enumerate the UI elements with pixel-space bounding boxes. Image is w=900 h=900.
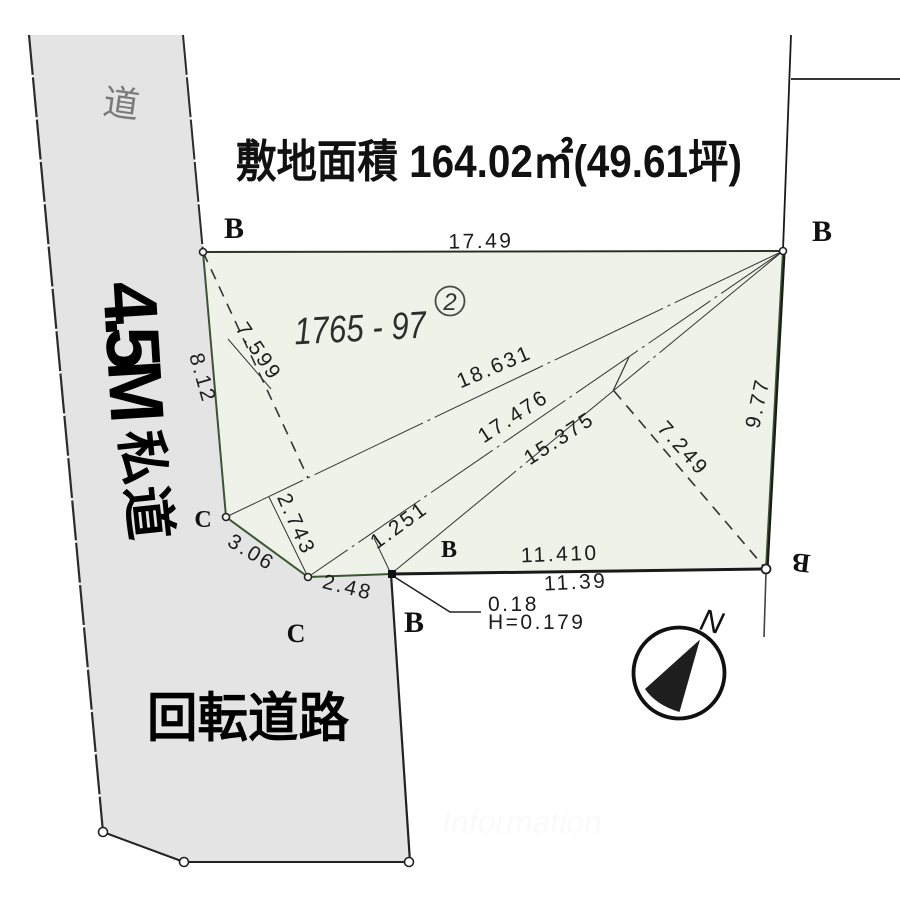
svg-text:C: C xyxy=(194,507,211,533)
svg-text:回転道路: 回転道路 xyxy=(147,689,350,748)
svg-text:17.49: 17.49 xyxy=(448,229,513,253)
svg-text:B: B xyxy=(790,547,812,579)
svg-text:N: N xyxy=(697,602,728,642)
svg-text:1765 - 97: 1765 - 97 xyxy=(293,304,429,353)
svg-text:敷地面積 164.02㎡(49.61坪): 敷地面積 164.02㎡(49.61坪) xyxy=(236,136,742,187)
svg-text:Information: Information xyxy=(442,804,602,840)
svg-text:2: 2 xyxy=(442,289,456,316)
svg-text:B: B xyxy=(224,212,244,245)
svg-text:C: C xyxy=(287,619,306,648)
svg-text:道: 道 xyxy=(101,81,142,127)
svg-text:11.39: 11.39 xyxy=(543,569,608,595)
svg-text:私道: 私道 xyxy=(109,427,180,545)
svg-text:B: B xyxy=(812,215,832,248)
svg-text:11.410: 11.410 xyxy=(521,542,599,568)
svg-text:H=0.179: H=0.179 xyxy=(488,611,585,634)
svg-text:B: B xyxy=(441,537,457,563)
svg-text:B: B xyxy=(404,606,424,639)
svg-text:4.5M: 4.5M xyxy=(86,279,179,422)
